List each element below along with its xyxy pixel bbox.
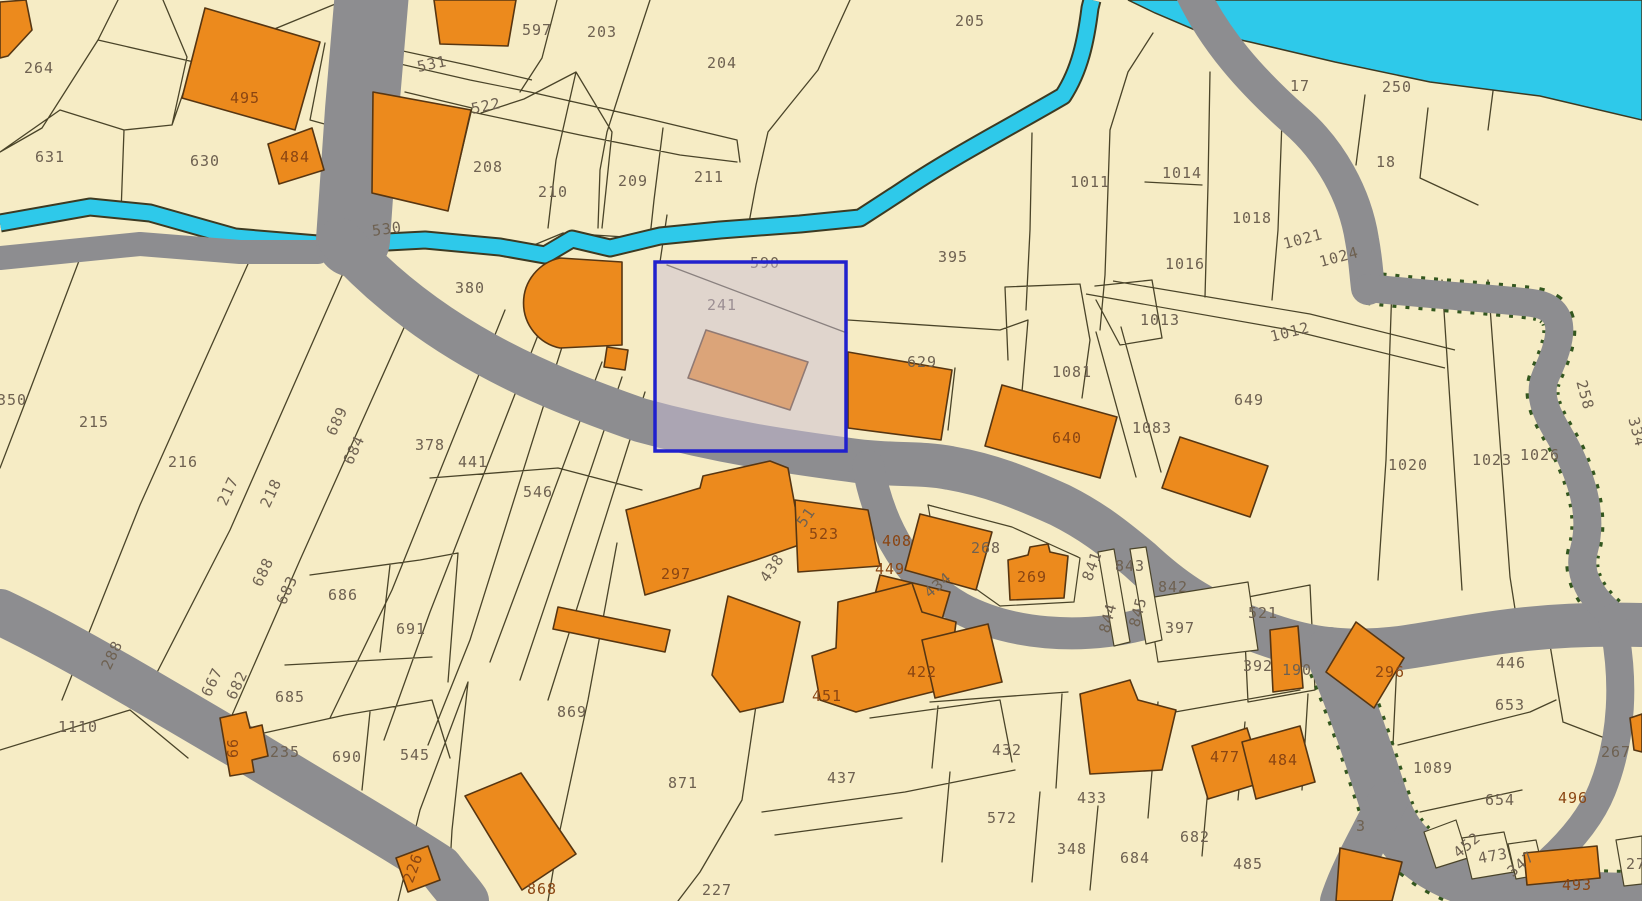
parcel-label-269: 269 bbox=[1017, 568, 1047, 586]
parcel-label-871: 871 bbox=[668, 774, 698, 792]
parcel-label-397: 397 bbox=[1165, 619, 1195, 637]
parcel-label-495: 495 bbox=[230, 89, 260, 107]
parcel-label-496: 496 bbox=[1558, 789, 1588, 807]
cadastral-map-viewport[interactable]: 2646316304954845972032042055315222082102… bbox=[0, 0, 1642, 901]
parcel-label-485: 485 bbox=[1233, 855, 1263, 873]
parcel-label-868: 868 bbox=[527, 880, 557, 898]
parcel-label-684: 684 bbox=[1120, 849, 1150, 867]
parcel-label-264: 264 bbox=[24, 59, 54, 77]
parcel-label-523: 523 bbox=[809, 525, 839, 543]
parcel-label-203: 203 bbox=[587, 23, 617, 41]
parcel-label-869: 869 bbox=[557, 703, 587, 721]
parcel-label-545: 545 bbox=[400, 746, 430, 764]
parcel-label-686: 686 bbox=[328, 586, 358, 604]
building-stadium-380[interactable] bbox=[524, 258, 622, 348]
parcel-label-451: 451 bbox=[812, 687, 842, 705]
parcel-label-378: 378 bbox=[415, 436, 445, 454]
parcel-label-297: 297 bbox=[661, 565, 691, 583]
parcel-label-691: 691 bbox=[396, 620, 426, 638]
parcel-label-433: 433 bbox=[1077, 789, 1107, 807]
parcel-label-432: 432 bbox=[992, 741, 1022, 759]
parcel-label-1016: 1016 bbox=[1165, 255, 1205, 273]
parcel-label-66: 66 bbox=[224, 738, 242, 758]
parcel-label-597: 597 bbox=[522, 21, 552, 39]
parcel-label-484: 484 bbox=[1268, 751, 1298, 769]
road-top bbox=[353, 0, 372, 240]
parcel-label-215: 215 bbox=[79, 413, 109, 431]
parcel-label-205: 205 bbox=[955, 12, 985, 30]
parcel-label-1011: 1011 bbox=[1070, 173, 1110, 191]
parcel-label-1083: 1083 bbox=[1132, 419, 1172, 437]
parcel-label-422: 422 bbox=[907, 663, 937, 681]
parcel-label-408: 408 bbox=[882, 532, 912, 550]
parcel-label-546: 546 bbox=[523, 483, 553, 501]
parcel-label-227: 227 bbox=[702, 881, 732, 899]
parcel-label-654: 654 bbox=[1485, 791, 1515, 809]
parcel-label-640: 640 bbox=[1052, 429, 1082, 447]
selection-rectangle[interactable] bbox=[655, 262, 846, 451]
parcel-label-843: 843 bbox=[1115, 557, 1145, 575]
parcel-label-350: 350 bbox=[0, 391, 27, 409]
parcel-label-216: 216 bbox=[168, 453, 198, 471]
parcel-label-629: 629 bbox=[907, 353, 937, 371]
parcel-label-211: 211 bbox=[694, 168, 724, 186]
parcel-label-1020: 1020 bbox=[1388, 456, 1428, 474]
parcel-label-842: 842 bbox=[1158, 578, 1188, 596]
parcel-label-348: 348 bbox=[1057, 840, 1087, 858]
parcel-label-685: 685 bbox=[275, 688, 305, 706]
parcel-label-17: 17 bbox=[1290, 77, 1310, 95]
parcel-label-630: 630 bbox=[190, 152, 220, 170]
parcel-label-1026: 1026 bbox=[1520, 446, 1560, 464]
parcel-label-235: 235 bbox=[270, 743, 300, 761]
parcel-label-1110: 1110 bbox=[58, 718, 98, 736]
parcel-label-267: 267 bbox=[1601, 743, 1631, 761]
parcel-label-649: 649 bbox=[1234, 391, 1264, 409]
parcel-label-296: 296 bbox=[1375, 663, 1405, 681]
parcel-label-682: 682 bbox=[1180, 828, 1210, 846]
parcel-label-441: 441 bbox=[458, 453, 488, 471]
selection-layer bbox=[655, 262, 846, 451]
parcel-label-18: 18 bbox=[1376, 153, 1396, 171]
parcel-label-690: 690 bbox=[332, 748, 362, 766]
parcel-label-392: 392 bbox=[1243, 657, 1273, 675]
parcel-label-1089: 1089 bbox=[1413, 759, 1453, 777]
parcel-label-493: 493 bbox=[1562, 876, 1592, 894]
parcel-label-1023: 1023 bbox=[1472, 451, 1512, 469]
parcel-label-449: 449 bbox=[875, 560, 905, 578]
parcel-label-572: 572 bbox=[987, 809, 1017, 827]
parcel-label-204: 204 bbox=[707, 54, 737, 72]
parcel-label-1014: 1014 bbox=[1162, 164, 1202, 182]
parcel-label-380: 380 bbox=[455, 279, 485, 297]
parcel-label-3: 3 bbox=[1356, 817, 1366, 835]
parcel-label-521: 521 bbox=[1248, 604, 1278, 622]
parcel-label-190: 190 bbox=[1282, 661, 1312, 679]
parcel-label-27: 27 bbox=[1626, 855, 1642, 873]
parcel-label-268: 268 bbox=[971, 539, 1001, 557]
parcel-label-484: 484 bbox=[280, 148, 310, 166]
parcel-label-477: 477 bbox=[1210, 748, 1240, 766]
cadastral-map-canvas[interactable]: 2646316304954845972032042055315222082102… bbox=[0, 0, 1642, 901]
building-top-edge[interactable] bbox=[434, 0, 516, 46]
parcel-label-1013: 1013 bbox=[1140, 311, 1180, 329]
building-521[interactable] bbox=[1270, 626, 1303, 692]
parcel-label-1081: 1081 bbox=[1052, 363, 1092, 381]
parcel-label-210: 210 bbox=[538, 183, 568, 201]
parcel-label-437: 437 bbox=[827, 769, 857, 787]
parcel-label-209: 209 bbox=[618, 172, 648, 190]
parcel-label-653: 653 bbox=[1495, 696, 1525, 714]
parcel-label-631: 631 bbox=[35, 148, 65, 166]
parcel-label-1018: 1018 bbox=[1232, 209, 1272, 227]
parcel-label-395: 395 bbox=[938, 248, 968, 266]
parcel-label-208: 208 bbox=[473, 158, 503, 176]
parcel-label-250: 250 bbox=[1382, 78, 1412, 96]
building-small-square[interactable] bbox=[604, 347, 628, 370]
parcel-label-446: 446 bbox=[1496, 654, 1526, 672]
road-left bbox=[0, 244, 318, 258]
